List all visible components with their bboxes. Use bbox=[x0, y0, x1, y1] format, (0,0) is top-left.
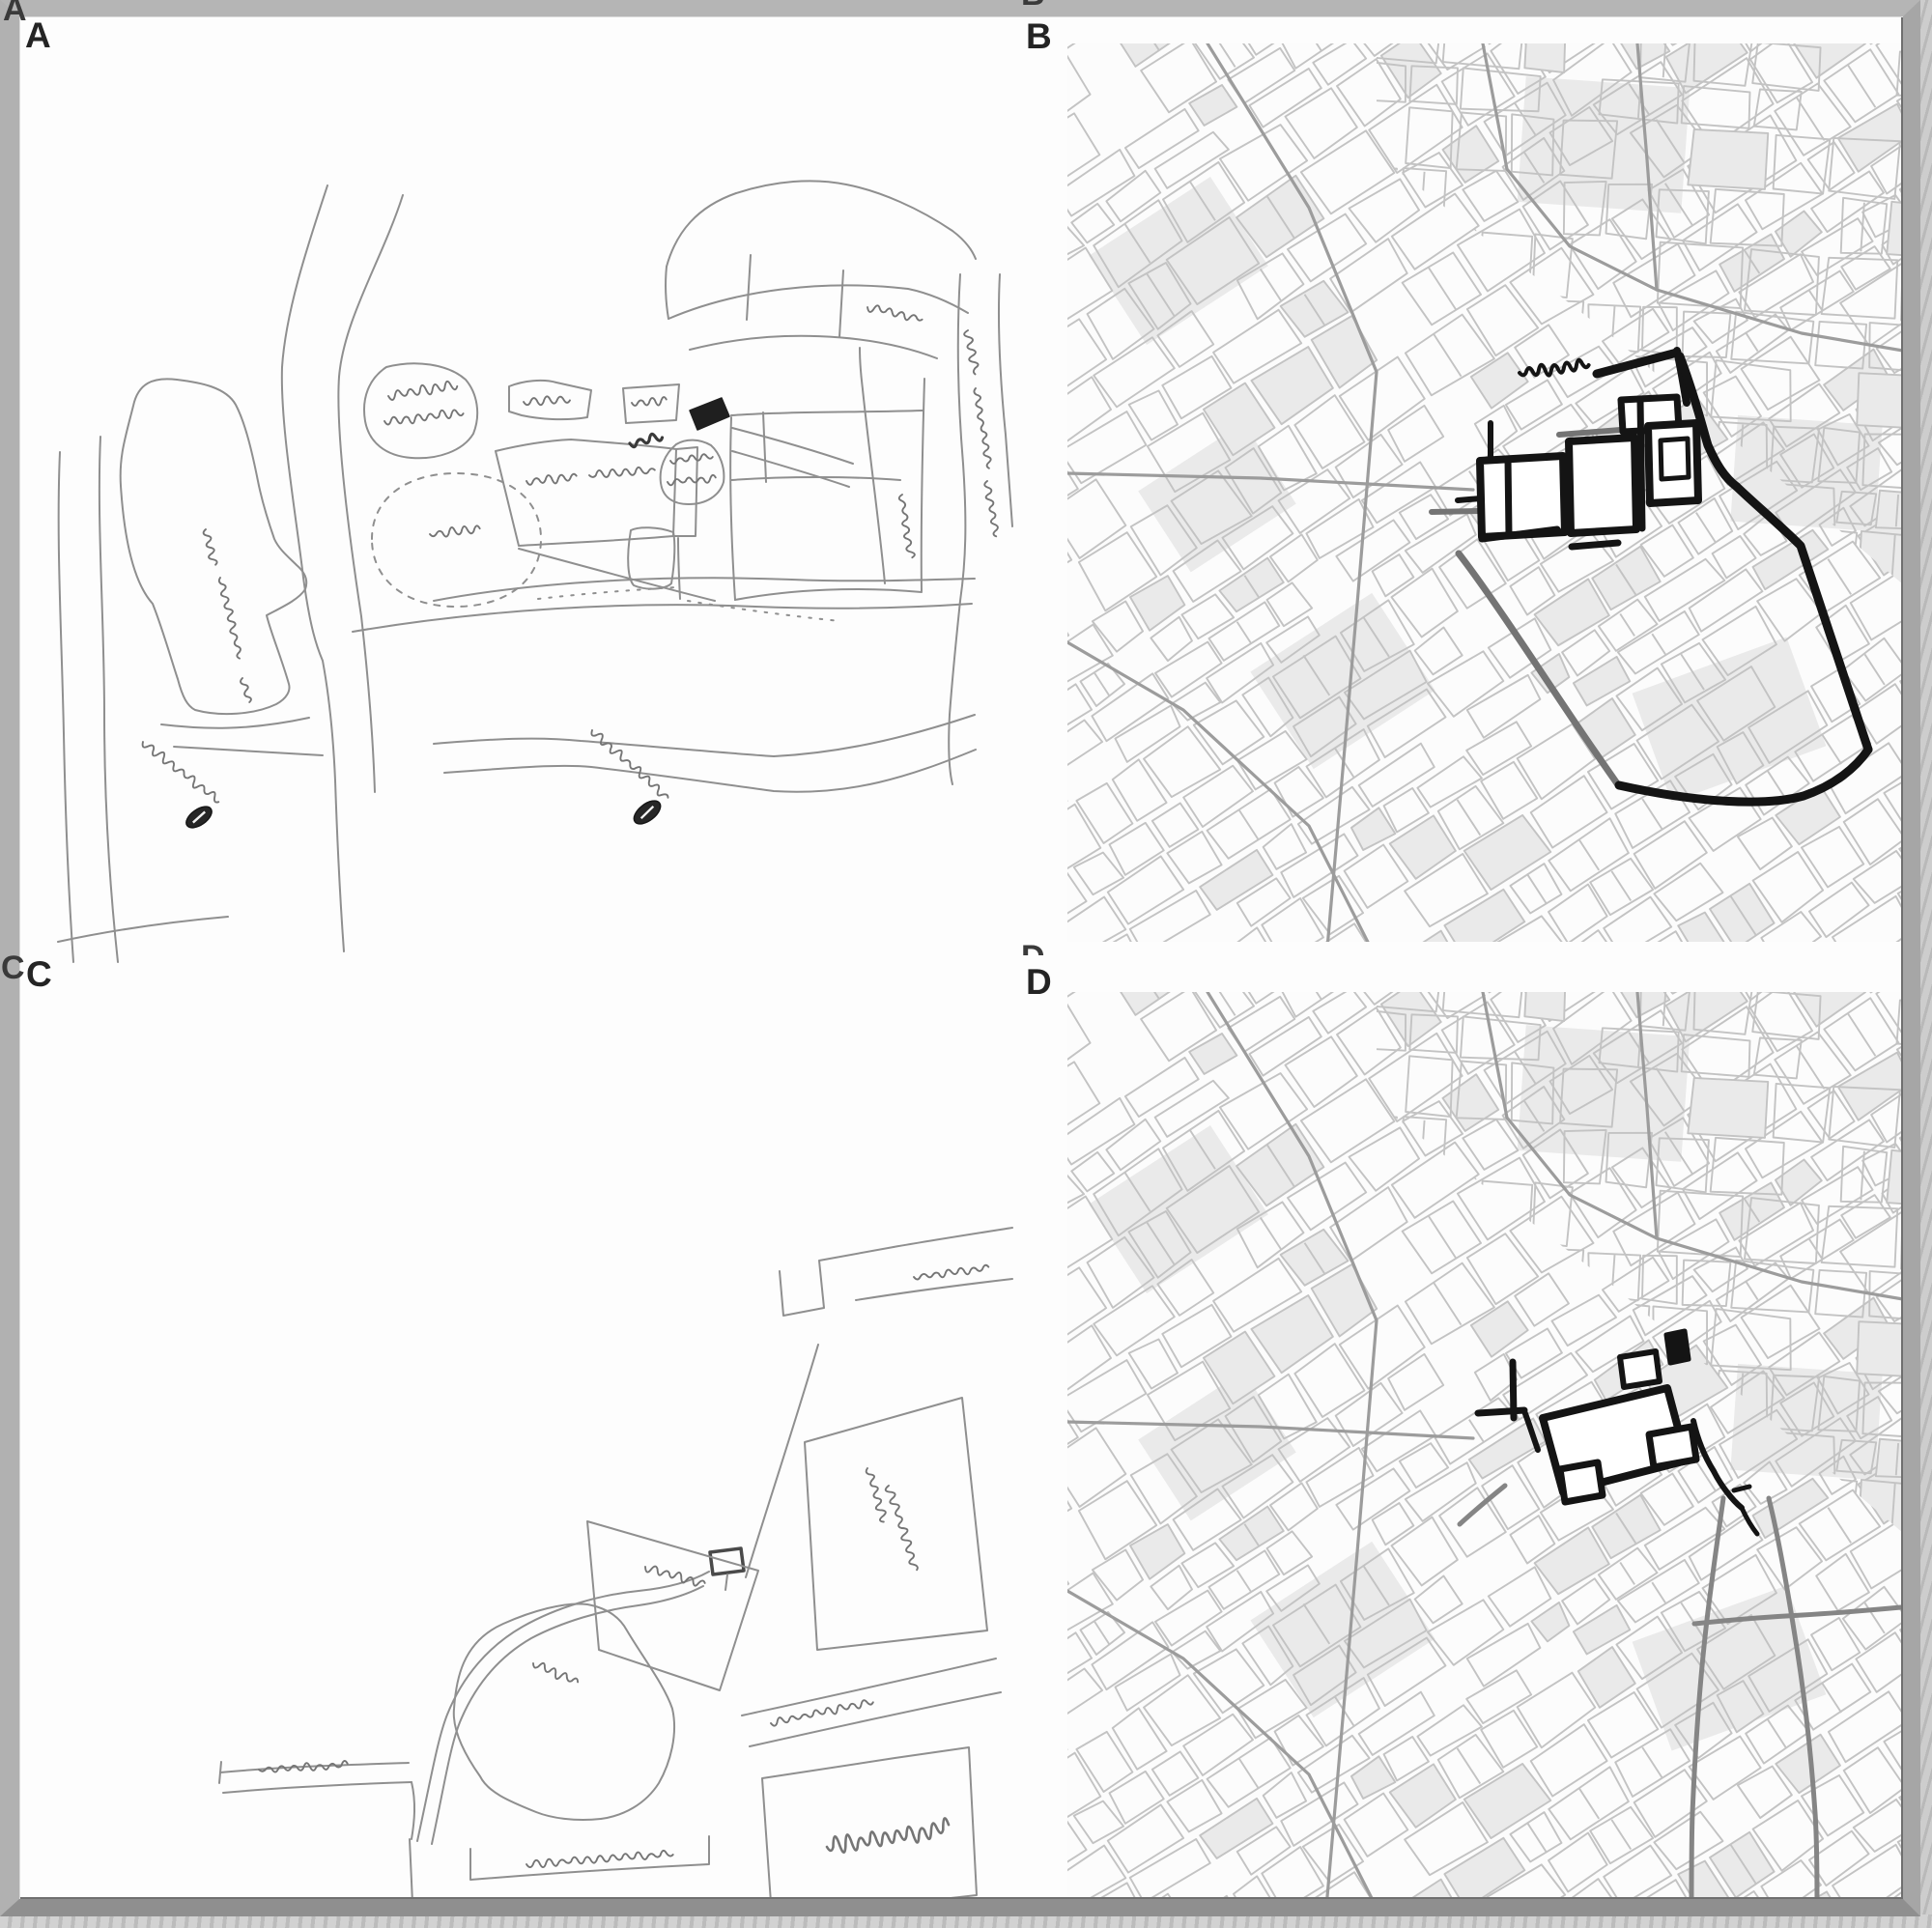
panel-d-label: D bbox=[1026, 964, 1052, 1000]
panel-c-sketch-map bbox=[19, 964, 1067, 1899]
panel-b-label: B bbox=[1026, 18, 1052, 54]
outer-texture-bottom bbox=[0, 1914, 1932, 1928]
ghost-label-a: A bbox=[3, 0, 27, 26]
ghost-label-c: C bbox=[1, 951, 25, 984]
ghost-label-d: D bbox=[1021, 941, 1054, 955]
outer-texture-right bbox=[1918, 0, 1932, 1928]
panel-a-sketch-map bbox=[19, 16, 1067, 964]
panel-d-street-map bbox=[1067, 992, 1903, 1899]
panel-b-street-map bbox=[1067, 43, 1903, 942]
figure-stage: A B C D A B C D bbox=[0, 0, 1932, 1928]
panel-c-label: C bbox=[26, 956, 52, 992]
ghost-label-b: B bbox=[1021, 0, 1045, 11]
panel-a-label: A bbox=[25, 17, 51, 53]
figure-content: A B C D bbox=[19, 16, 1903, 1899]
